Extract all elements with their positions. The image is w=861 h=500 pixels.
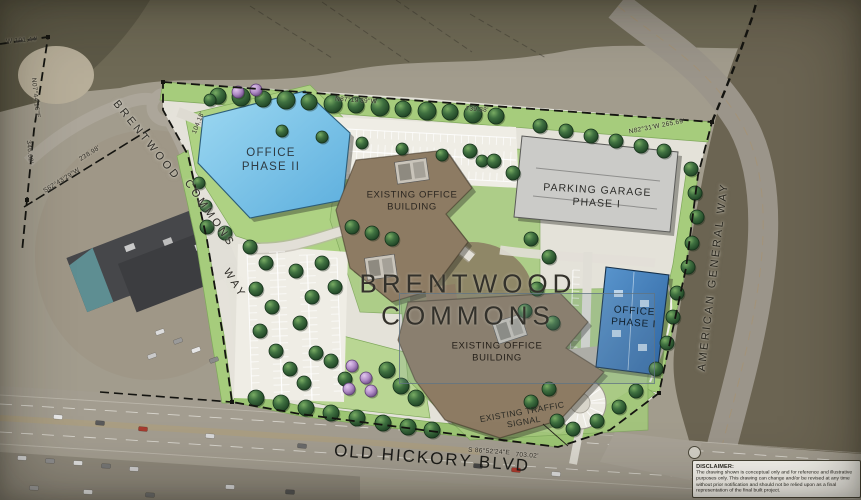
tree-icon [629,384,643,398]
tree-icon [533,119,547,133]
tree-icon [259,256,273,270]
tree-icon [293,316,307,330]
tree-icon [612,400,626,414]
car-icon [45,459,54,464]
tree-icon [218,226,232,240]
car-icon [145,493,154,498]
ornamental-tree-icon [346,360,358,372]
tree-icon [550,414,564,428]
tree-icon [200,220,214,234]
ornamental-tree-icon [343,383,355,395]
compass-icon [688,446,701,459]
car-icon [511,467,520,472]
tree-icon [487,154,501,168]
tree-icon [418,102,436,120]
car-icon [225,485,234,490]
tree-icon [249,282,263,296]
ornamental-tree-icon [360,372,372,384]
tree-icon [248,390,264,406]
tree-icon [379,362,395,378]
tree-icon [442,104,458,120]
tree-icon [476,155,488,167]
car-icon [83,490,92,495]
car-icon [138,426,147,431]
tree-icon [273,395,289,411]
car-icon [297,443,306,448]
tree-icon [298,400,314,416]
tree-icon [349,410,365,426]
tree-icon [524,395,538,409]
tree-icon [345,220,359,234]
tree-icon [324,354,338,368]
tree-icon [309,346,323,360]
tree-icon [524,232,538,246]
tree-icon [371,98,389,116]
tree-icon [590,414,604,428]
tree-icon [289,264,303,278]
tree-icon [297,376,311,390]
tree-icon [584,129,598,143]
tree-icon [542,382,556,396]
tree-icon [488,108,504,124]
tree-icon [660,336,674,350]
tree-icon [685,236,699,250]
car-icon [129,467,138,472]
tree-icon [269,344,283,358]
tree-icon [385,232,399,246]
tree-icon [609,134,623,148]
car-icon [73,461,82,466]
ornamental-tree-icon [365,385,377,397]
ornamental-tree-icon [250,84,262,96]
tree-icon [634,139,648,153]
site-plan-drawing [0,0,861,500]
tree-icon [463,144,477,158]
car-icon [473,463,482,468]
tree-icon [506,166,520,180]
disclaimer-box: DISCLAIMER: The drawing shown is concept… [692,460,861,498]
tree-icon [559,124,573,138]
site-plan-map: BRENTWOOD COMMONS WAY OFFICE PHASE II EX… [0,0,861,500]
tree-icon [348,97,364,113]
tree-icon [276,125,288,137]
car-icon [101,464,110,469]
car-icon [205,433,214,438]
tree-icon [243,240,257,254]
tree-icon [328,280,342,294]
tree-icon [375,415,391,431]
disclaimer-text: The drawing shown is conceptual only and… [696,469,856,493]
tree-icon [356,137,368,149]
tree-icon [396,143,408,155]
car-icon [551,471,560,476]
tree-icon [395,101,411,117]
tree-icon [204,94,216,106]
car-icon [285,490,294,495]
parking-garage-building [514,136,678,232]
car-icon [29,486,38,491]
tree-icon [681,260,695,274]
tree-icon [277,91,295,109]
tree-icon [316,131,328,143]
car-icon [95,420,104,425]
tree-icon [542,250,556,264]
tree-icon [408,390,424,406]
tree-icon [566,422,580,436]
tree-icon [283,362,297,376]
tree-icon [301,94,317,110]
car-icon [17,456,26,461]
tree-icon [315,256,329,270]
tree-icon [666,310,680,324]
tree-icon [365,226,379,240]
tree-icon [324,95,342,113]
tree-icon [684,162,698,176]
tree-icon [305,290,319,304]
car-icon [53,414,62,419]
tree-icon [436,149,448,161]
tree-icon [464,105,482,123]
highlight-overlay [399,293,655,384]
tree-icon [253,324,267,338]
tree-icon [200,200,212,212]
tree-icon [265,300,279,314]
tree-icon [424,422,440,438]
tree-icon [657,144,671,158]
